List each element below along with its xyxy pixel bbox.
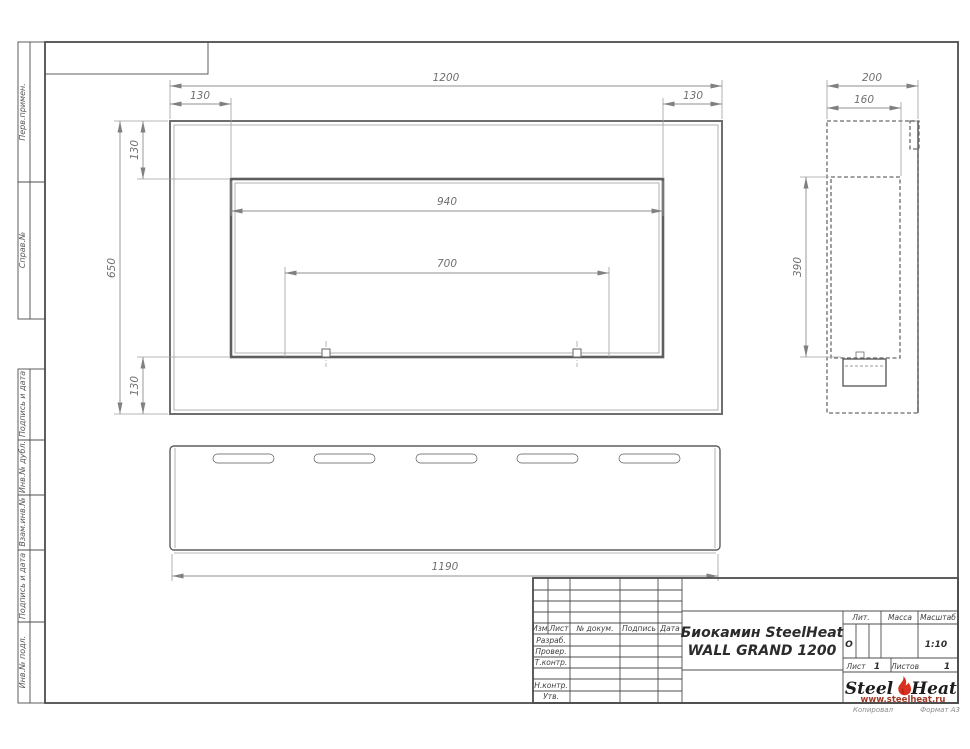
vent-slot	[213, 454, 274, 463]
drawing-frame-border	[45, 42, 958, 703]
dim-offset-right: 130	[683, 90, 703, 102]
stamp-label: Инв.№ подл.	[18, 636, 27, 689]
side-outer-contour	[827, 121, 918, 413]
row-tkontr: Т.контр.	[535, 658, 568, 667]
mass-label: Масса	[888, 613, 912, 622]
lit-value: О	[845, 640, 853, 650]
bottom-view	[170, 446, 720, 553]
logo-url: www.steelheat.ru	[861, 695, 946, 705]
copy-note: Копировал	[853, 706, 894, 714]
vent-slot	[619, 454, 680, 463]
dim-offset-top: 130	[129, 140, 141, 160]
row-nkontr: Н.контр.	[534, 681, 568, 690]
sheet-label: Лист	[845, 662, 866, 671]
vent-slot	[517, 454, 578, 463]
scale-label: Масштаб	[920, 613, 956, 622]
corner-reference-box	[45, 42, 208, 74]
sheet-value: 1	[874, 662, 880, 672]
burner-tab-right	[573, 349, 581, 357]
col-podpis: Подпись	[622, 624, 656, 633]
sheets-label: Листов	[890, 662, 919, 671]
doc-title-line1: Биокамин SteelHeat	[681, 625, 845, 641]
row-utv: Утв.	[543, 692, 559, 701]
steelheat-logo: Steel Heat www.steelheat.ru	[845, 676, 957, 705]
vent-slot	[314, 454, 375, 463]
dim-burner-span: 700	[437, 258, 457, 270]
dim-depth: 200	[862, 72, 882, 84]
dim-overall-width: 1200	[433, 72, 460, 84]
dim-opening-height: 390	[792, 257, 804, 277]
stamp-label: Взам.инв.№	[18, 497, 27, 546]
side-view-dimensions: 200 160 390	[792, 72, 918, 357]
flame-icon	[898, 676, 911, 695]
stamp-label: Перв.примен.	[18, 83, 27, 141]
sheets-value: 1	[944, 662, 950, 672]
stamp-label: Подпись и дата	[18, 553, 27, 619]
stamp-label: Справ.№	[18, 232, 27, 268]
vent-slot	[416, 454, 477, 463]
dim-opening-width: 940	[437, 196, 457, 208]
doc-title-line2: WALL GRAND 1200	[688, 643, 837, 659]
dim-offset-bottom: 130	[129, 376, 141, 396]
side-burner-box	[843, 359, 886, 386]
left-margin-stamps: Перв.примен. Справ.№ Подпись и дата Инв.…	[18, 42, 45, 703]
footer-notes: Копировал Формат А3	[853, 706, 960, 714]
side-view	[827, 121, 919, 413]
dim-base-length: 1190	[432, 561, 459, 573]
drawing-sheet: Перв.примен. Справ.№ Подпись и дата Инв.…	[0, 0, 970, 749]
dim-overall-height: 650	[106, 258, 118, 278]
col-izm: Изм.	[532, 624, 550, 633]
lit-label: Лит.	[851, 613, 869, 622]
col-docnum: № докум.	[576, 624, 614, 633]
format-note: Формат А3	[920, 706, 960, 714]
row-prover: Провер.	[535, 647, 566, 656]
row-razrab: Разраб.	[536, 636, 565, 645]
title-block: Изм. Лист № докум. Подпись Дата Разраб. …	[532, 578, 958, 705]
sheet-frame	[45, 42, 958, 703]
side-opening-contour	[831, 177, 900, 358]
stamp-label: Инв.№ дубл.	[18, 441, 27, 493]
bottom-base-contour	[170, 446, 720, 550]
dim-offset-left: 130	[190, 90, 210, 102]
col-data: Дата	[659, 624, 680, 633]
front-view-dimensions: 1200 130 130 940 700 650 130 130	[106, 72, 722, 414]
scale-value: 1:10	[925, 640, 947, 650]
stamp-label: Подпись и дата	[18, 371, 27, 437]
col-list: Лист	[548, 624, 569, 633]
burner-tab-left	[322, 349, 330, 357]
cad-drawing-canvas: Перв.примен. Справ.№ Подпись и дата Инв.…	[0, 0, 970, 749]
dim-inner-depth: 160	[854, 94, 874, 106]
bottom-view-dimensions: 1190	[172, 554, 718, 581]
